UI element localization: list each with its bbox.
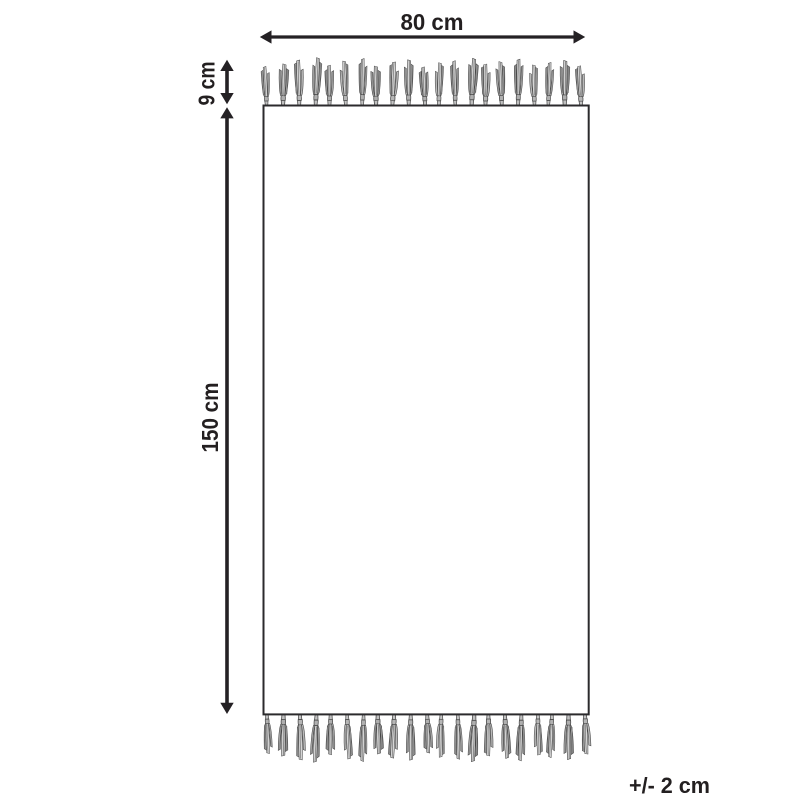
svg-text:+/- 2 cm: +/- 2 cm [629,773,710,798]
svg-text:150 cm: 150 cm [197,383,223,453]
svg-text:80 cm: 80 cm [401,9,464,35]
svg-text:9 cm: 9 cm [194,62,220,106]
